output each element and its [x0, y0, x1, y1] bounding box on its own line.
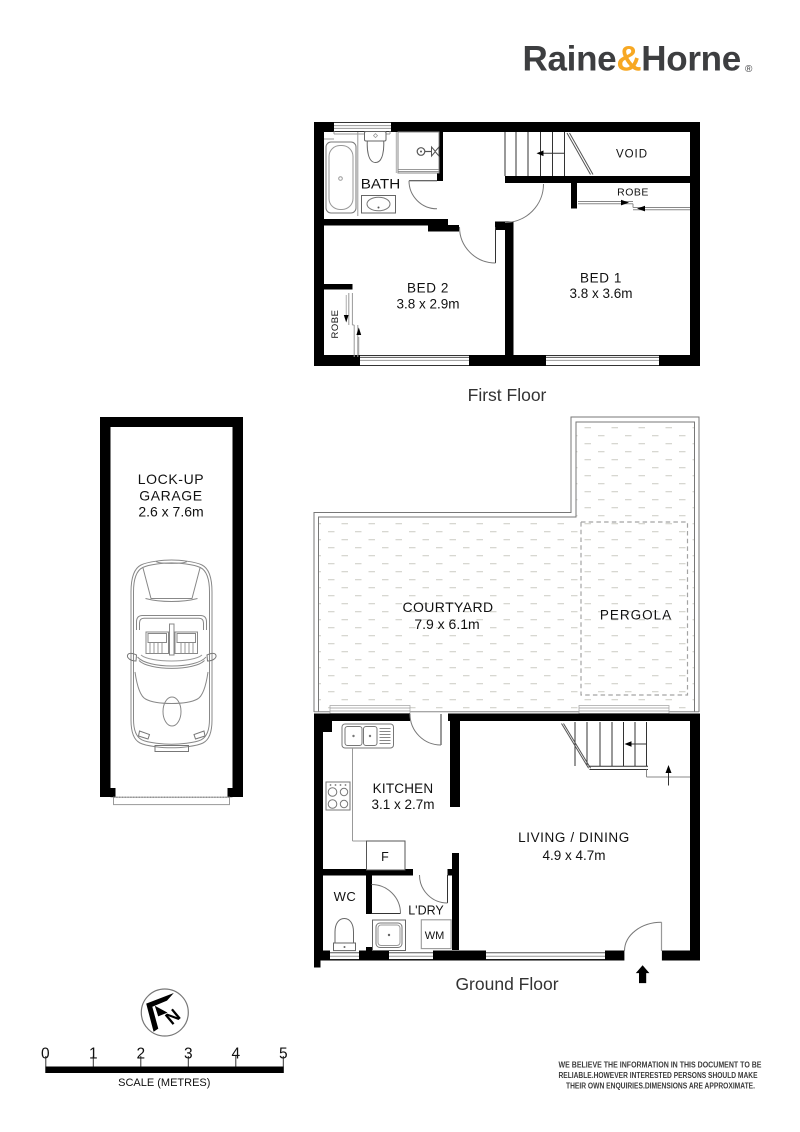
svg-text:KITCHEN: KITCHEN [373, 781, 434, 796]
svg-text:First Floor: First Floor [468, 385, 547, 405]
svg-text:5: 5 [279, 1046, 288, 1063]
svg-text:ROBE: ROBE [330, 310, 341, 339]
svg-text:7.9 x 6.1m: 7.9 x 6.1m [414, 616, 479, 632]
svg-text:PERGOLA: PERGOLA [600, 608, 672, 623]
svg-text:0: 0 [41, 1046, 50, 1063]
svg-text:1: 1 [89, 1046, 98, 1063]
svg-text:LOCK-UP: LOCK-UP [138, 471, 204, 487]
svg-text:BED 1: BED 1 [580, 271, 622, 286]
svg-text:BED 2: BED 2 [407, 281, 449, 296]
svg-text:GARAGE: GARAGE [139, 488, 203, 504]
svg-text:BATH: BATH [361, 177, 401, 192]
svg-text:F: F [381, 850, 389, 864]
svg-text:2.6 x 7.6m: 2.6 x 7.6m [138, 504, 203, 520]
svg-text:3: 3 [184, 1046, 193, 1063]
svg-text:LIVING / DINING: LIVING / DINING [518, 830, 630, 845]
svg-text:4: 4 [231, 1046, 240, 1063]
svg-text:3.8 x 3.6m: 3.8 x 3.6m [569, 286, 632, 301]
svg-text:®: ® [745, 64, 753, 75]
svg-text:WC: WC [334, 889, 357, 904]
svg-text:COURTYARD: COURTYARD [403, 599, 494, 615]
svg-text:VOID: VOID [616, 149, 648, 161]
svg-text:WE BELIEVE THE INFORMATION IN: WE BELIEVE THE INFORMATION IN THIS DOCUM… [559, 1060, 762, 1070]
svg-text:2: 2 [136, 1046, 145, 1063]
svg-text:ROBE: ROBE [617, 187, 649, 199]
svg-text:3.1 x 2.7m: 3.1 x 2.7m [371, 797, 434, 812]
svg-text:4.9 x 4.7m: 4.9 x 4.7m [542, 848, 605, 863]
svg-text:THEIR OWN ENQUIRIES.DIMENSIONS: THEIR OWN ENQUIRIES.DIMENSIONS ARE APPRO… [566, 1081, 755, 1091]
svg-text:L'DRY: L'DRY [408, 904, 444, 918]
svg-text:WM: WM [425, 930, 445, 942]
svg-text:Raine&Horne: Raine&Horne [523, 40, 741, 79]
svg-text:3.8 x 2.9m: 3.8 x 2.9m [396, 297, 459, 312]
svg-text:Ground Floor: Ground Floor [455, 974, 558, 994]
svg-text:RELIABLE.HOWEVER INTERESTED PE: RELIABLE.HOWEVER INTERESTED PERSONS SHOU… [559, 1070, 758, 1080]
svg-text:SCALE (METRES): SCALE (METRES) [118, 1077, 210, 1089]
